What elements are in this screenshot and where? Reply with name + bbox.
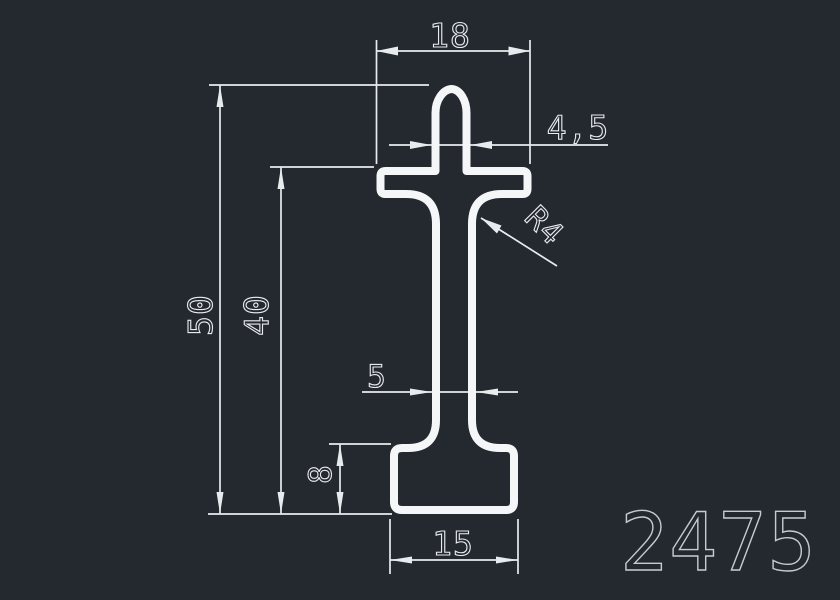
part-number: 2475 xyxy=(620,496,817,589)
dim-label-overall-height: 50 xyxy=(181,294,220,336)
dim-label-upper-height: 40 xyxy=(237,294,276,336)
dim-label-base-height: 8 xyxy=(303,464,339,484)
cad-drawing: 18 4,5 R4 50 40 xyxy=(0,0,840,600)
dim-label-base-width: 15 xyxy=(432,524,474,563)
cad-canvas: 18 4,5 R4 50 40 xyxy=(0,0,840,600)
dim-label-top-width: 18 xyxy=(429,16,471,55)
dim-label-stem-width: 4,5 xyxy=(547,108,610,147)
dim-label-web-thickness: 5 xyxy=(367,359,387,395)
